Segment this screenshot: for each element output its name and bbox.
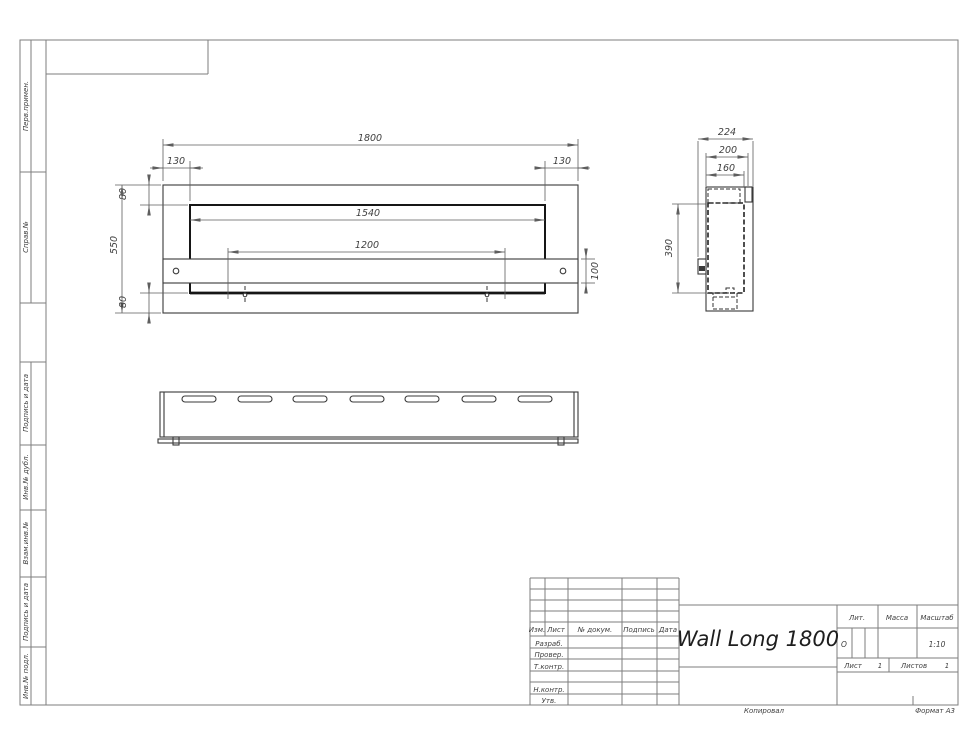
dim-front-overall-height: 550 [109, 236, 120, 254]
dim-side-overall-depth: 224 [718, 127, 736, 138]
front-view: 1800 130 130 80 550 80 1540 1200 100 [109, 133, 601, 321]
mounting-bracket [163, 259, 578, 283]
side-view: 224 200 160 390 [664, 127, 753, 311]
sidebar-label-inv-dubl: Инв.№ дубл. [22, 454, 30, 500]
lit-label: Лит. [848, 614, 865, 622]
row-utv: Утв. [542, 697, 557, 705]
sheet-value: 1 [878, 662, 882, 670]
drawing-sheet: Перв.примен. Справ.№ Подпись и дата Инв.… [0, 0, 970, 749]
bracket-bolt [698, 259, 706, 274]
format-label: Формат А3 [915, 707, 955, 715]
lit-value: О [841, 640, 847, 649]
dim-front-opening-width: 1540 [356, 208, 380, 219]
vent-slots [182, 396, 552, 402]
sidebar-label-inv-podl: Инв.№ подл. [22, 653, 30, 699]
row-nkontr: Н.контр. [533, 686, 564, 694]
dim-front-bracket-height: 100 [590, 262, 601, 280]
burner-box [713, 293, 737, 309]
row-prover: Провер. [534, 651, 563, 659]
row-razrab: Разраб. [535, 640, 563, 648]
sheets-value: 1 [945, 662, 949, 670]
sidebar-stamp: Перв.примен. Справ.№ Подпись и дата Инв.… [22, 81, 30, 699]
dim-front-top-flange: 80 [118, 188, 129, 200]
sidebar-label-sprav: Справ.№ [22, 221, 30, 253]
dim-side-inner-height: 390 [664, 239, 675, 257]
dim-side-body-depth: 200 [719, 145, 737, 156]
sidebar-label-vzam: Взам.инв.№ [22, 521, 30, 564]
col-izm: Изм. [529, 626, 545, 634]
col-sign: Подпись [623, 626, 655, 634]
dim-front-overall-width: 1800 [358, 133, 382, 144]
scale-label: Масштаб [920, 614, 954, 622]
row-tkontr: Т.контр. [534, 663, 564, 671]
sidebar-label-perv: Перв.примен. [22, 81, 30, 131]
top-bracket [745, 187, 752, 202]
bottom-view [158, 392, 578, 445]
massa-label: Масса [886, 614, 908, 622]
copied-label: Копировал [744, 707, 785, 715]
foot-left [173, 437, 179, 445]
sheet-label: Лист [843, 662, 863, 670]
dim-front-offset-left: 130 [167, 156, 185, 167]
designation-box [46, 40, 208, 74]
col-date: Дата [658, 626, 677, 634]
dim-front-mount-spacing: 1200 [355, 240, 379, 251]
dim-front-offset-right: 130 [553, 156, 571, 167]
dim-front-bottom-flange: 80 [118, 296, 129, 308]
col-doc: № докум. [577, 626, 613, 634]
bottom-rail [158, 439, 578, 443]
sheets-label: Листов [900, 662, 927, 670]
bracket-hole-right [560, 268, 566, 274]
sidebar-label-podpis2: Подпись и дата [22, 583, 30, 641]
foot-right [558, 437, 564, 445]
document-title: Wall Long 1800 [677, 627, 839, 651]
sidebar-label-podpis1: Подпись и дата [22, 374, 30, 432]
col-list: Лист [546, 626, 566, 634]
dim-side-inner-depth: 160 [717, 163, 735, 174]
title-block: Изм. Лист № докум. Подпись Дата Разраб. … [529, 578, 958, 705]
scale-value: 1:10 [929, 640, 946, 649]
bracket-hole-left [173, 268, 179, 274]
